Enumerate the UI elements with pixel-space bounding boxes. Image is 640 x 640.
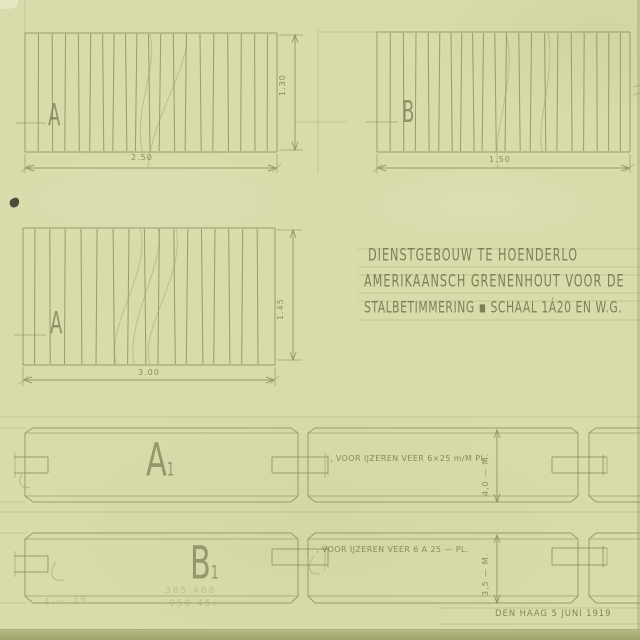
pencil-scribble-2: 385 468 xyxy=(165,587,216,596)
panel-b-top xyxy=(318,32,640,173)
width-dim-b: 1.50 xyxy=(489,156,511,164)
title-line-2: AMERIKAANSCH GRENENHOUT VOOR DE xyxy=(364,273,625,290)
plank-b1-label-index: 1 xyxy=(211,562,219,584)
height-dim-a-top: 1.30 xyxy=(279,74,287,96)
plank-a1-thickness-dim: 4,0 — M. xyxy=(482,453,490,496)
plank-row-b1 xyxy=(0,512,640,603)
plank-a1-label: A1 xyxy=(146,437,175,483)
plank-b1-note: , VOOR IJZEREN VEER 6 A 25 — PL. xyxy=(316,546,469,554)
panel-a-mid-label: A xyxy=(50,308,62,338)
plank-a1-note: , VOOR IJZEREN VEER 6×25 m/M PL. xyxy=(330,455,488,463)
width-dim-a-mid: 3.00 xyxy=(138,369,160,377)
panel-a-top-label: A xyxy=(48,100,60,130)
plank-row-a1 xyxy=(0,417,640,502)
drawing-sheet: A 2.50 1.30 B 1.50 A 3.00 1.45 DIENSTGEB… xyxy=(0,0,640,640)
title-line-1: DIENSTGEBOUW TE HOENDERLO xyxy=(368,247,578,264)
pencil-scribble-3: 950 45c xyxy=(169,600,219,609)
panel-b-top-slats xyxy=(390,33,620,151)
plank-a1-label-index: 1 xyxy=(167,459,175,481)
height-dim-a-mid: 1.45 xyxy=(277,298,285,320)
linework-svg xyxy=(0,0,640,640)
paper-bottom-edge xyxy=(0,629,640,640)
panel-a-top-slats xyxy=(38,34,267,151)
ink-blot xyxy=(10,198,20,208)
plank-b1-thickness-dim: 3,5 — M. xyxy=(482,553,490,596)
title-line-3: STALBETIMMERING ▪ SCHAAL 1Á20 EN W.G. xyxy=(364,299,622,315)
plank-b1-label: B1 xyxy=(190,540,219,586)
place-date: DEN HAAG 5 JUNI 1919 xyxy=(495,610,611,619)
width-dim-a-top: 2.50 xyxy=(131,154,153,162)
panel-a-top xyxy=(16,0,347,173)
panel-a-mid-slats xyxy=(35,229,258,364)
panel-b-label: B xyxy=(402,97,414,127)
